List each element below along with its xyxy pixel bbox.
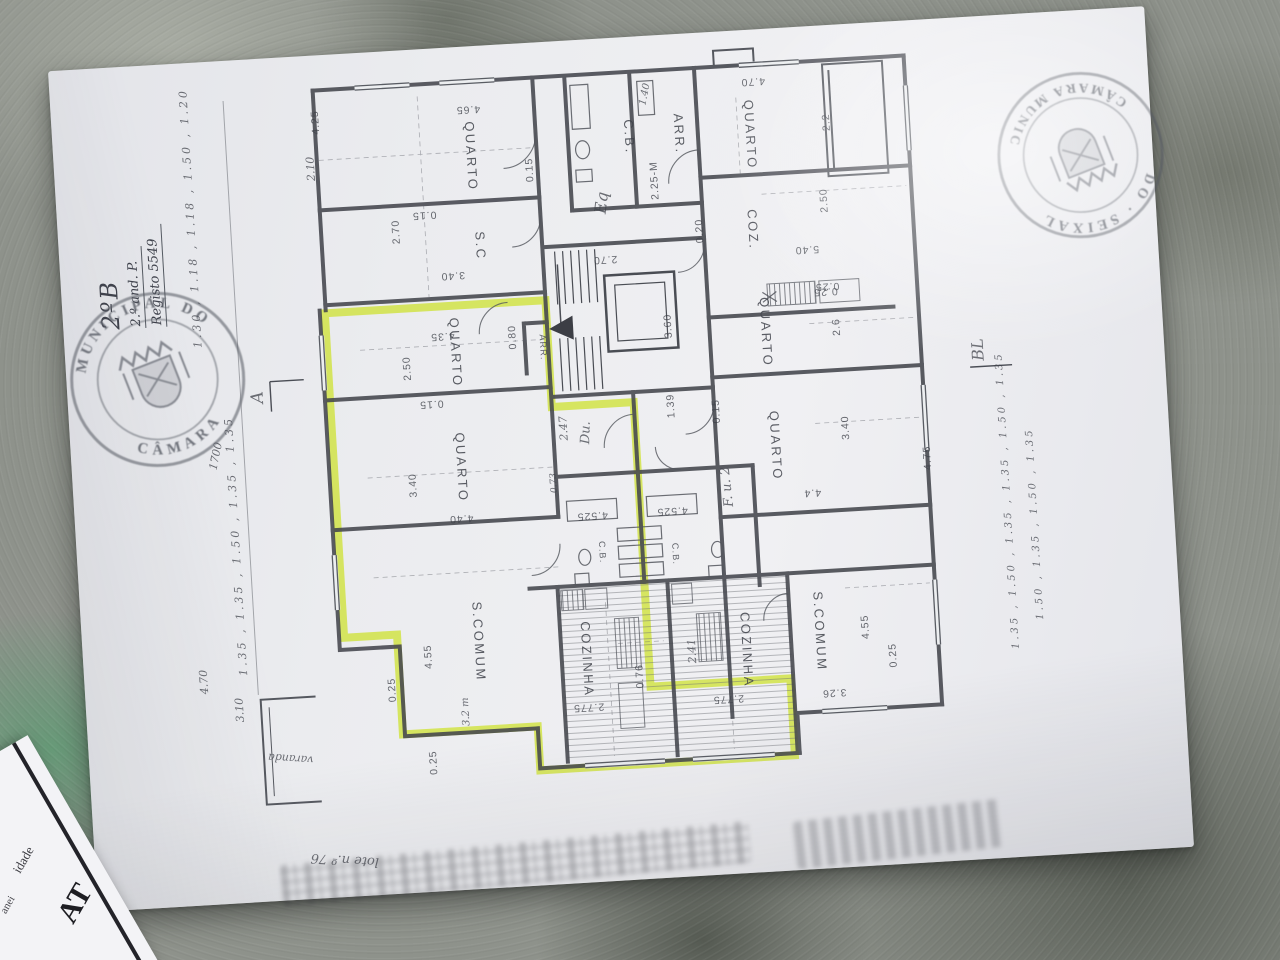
- dim-340r: 3.40: [839, 415, 852, 440]
- dim-015c: 0.15: [710, 399, 723, 424]
- hw-chain-right2: 1.50 , 1.35 , 1.50 , 1.35: [1024, 427, 1046, 620]
- dim-020: 0.20: [693, 218, 706, 243]
- room-label-quarto-6: QUARTO: [766, 410, 785, 481]
- dim-540: 5.40: [794, 243, 819, 256]
- hw-247: 2.47: [556, 416, 570, 442]
- dim-2775a: 2.775: [573, 700, 605, 714]
- dim-025l: 0.25: [386, 677, 399, 702]
- room-label-cb-2: C.B.: [597, 541, 608, 564]
- section-marker-bl: BL: [967, 336, 1012, 367]
- dim-250q: 2.50: [401, 356, 414, 381]
- hw-32m: 3.2 m: [460, 697, 473, 726]
- photo-scene: 2ºB 2.º and. P. Registo 5549: [0, 0, 1280, 960]
- corner-doc-fragment-2: anei: [0, 894, 18, 916]
- room-label-scomum-1: S.COMUM: [469, 601, 489, 682]
- dim-435: 4.35: [430, 330, 455, 343]
- coat-of-arms-right: [1044, 119, 1120, 194]
- room-label-cb-1: C.B.: [621, 119, 638, 155]
- dim-22: 2.2: [820, 113, 833, 131]
- blueprint-paper: 2ºB 2.º and. P. Registo 5549: [48, 6, 1194, 912]
- dim-270st: 2.70: [593, 253, 618, 266]
- hw-470: 4.70: [197, 670, 211, 696]
- dim-340q: 3.40: [406, 473, 419, 498]
- dim-465: 4.65: [455, 103, 480, 116]
- dim-4525a: 4.525: [576, 509, 608, 523]
- dim-2775b: 2.775: [712, 692, 744, 706]
- dim-025q: 0.25: [815, 280, 840, 293]
- dim-440: 4.40: [449, 512, 474, 525]
- hw-241: 2.41: [685, 639, 699, 665]
- dim-475: 4.75: [921, 445, 934, 470]
- dim-270a: 2.70: [389, 219, 402, 244]
- dim-076: 0.76: [633, 664, 646, 689]
- dim-44: 4.4: [803, 486, 821, 499]
- dim-225m: 2.25-M: [647, 161, 661, 200]
- hw-varanda: varanda: [268, 751, 314, 767]
- room-label-quarto-1: QUARTO: [462, 121, 481, 192]
- room-label-arr-2: ARR.: [537, 334, 549, 361]
- dim-080: 0.80: [506, 325, 519, 350]
- room-label-cb-3: C.B.: [670, 542, 681, 565]
- dim-025b: 0.25: [427, 750, 440, 775]
- dim-025r: 0.25: [886, 643, 899, 668]
- hw-073: 0.73: [549, 472, 560, 493]
- corner-doc-fragment-1: idade: [9, 844, 37, 876]
- dim-015d: 0.15: [419, 397, 444, 410]
- dim-425: 4.25: [309, 110, 322, 135]
- room-label-arr-1: ARR.: [671, 113, 688, 155]
- dim-015b: 0.15: [523, 157, 536, 182]
- dim-360: 3.60: [661, 313, 674, 338]
- corner-doc-title: AT: [51, 878, 100, 929]
- dim-4525b: 4.525: [656, 504, 688, 518]
- hw-310: 3.10: [233, 697, 247, 722]
- dim-455r: 4.55: [859, 614, 872, 639]
- dim-340sc: 3.40: [440, 269, 465, 282]
- room-label-quarto-3: QUARTO: [446, 317, 465, 388]
- hw-du: Du.: [578, 421, 594, 445]
- room-label-scomum-2: S.COMUM: [810, 591, 830, 672]
- dim-250coz: 2.50: [817, 188, 830, 213]
- dim-139: 1.39: [664, 393, 677, 418]
- dim-015a: 0.15: [412, 209, 437, 222]
- room-label-quarto-2: QUARTO: [741, 99, 760, 170]
- hw-210: 2.10: [304, 156, 318, 182]
- dim-326: 3.26: [822, 686, 847, 699]
- hw-f-u-2: F. u. 2: [718, 466, 737, 509]
- room-label-coz: COZ.: [744, 209, 761, 251]
- dim-455l: 4.55: [422, 644, 435, 669]
- stair-core: [545, 245, 681, 392]
- svg-text:BL: BL: [967, 338, 987, 362]
- coat-of-arms-left: [116, 338, 196, 417]
- room-label-sc: S.C: [472, 231, 489, 261]
- hw-chain-right: 1.35 , 1.50 , 1.35 , 1.35 , 1.50 , 1.35: [993, 351, 1022, 649]
- room-label-quarto-5: QUARTO: [757, 297, 776, 368]
- dim-26: 2.6: [830, 318, 843, 336]
- room-label-quarto-4: QUARTO: [452, 432, 471, 503]
- dim-470: 4.70: [740, 75, 765, 88]
- dim-140: 1.40: [637, 82, 652, 107]
- hw-eq: Eq: [591, 191, 613, 216]
